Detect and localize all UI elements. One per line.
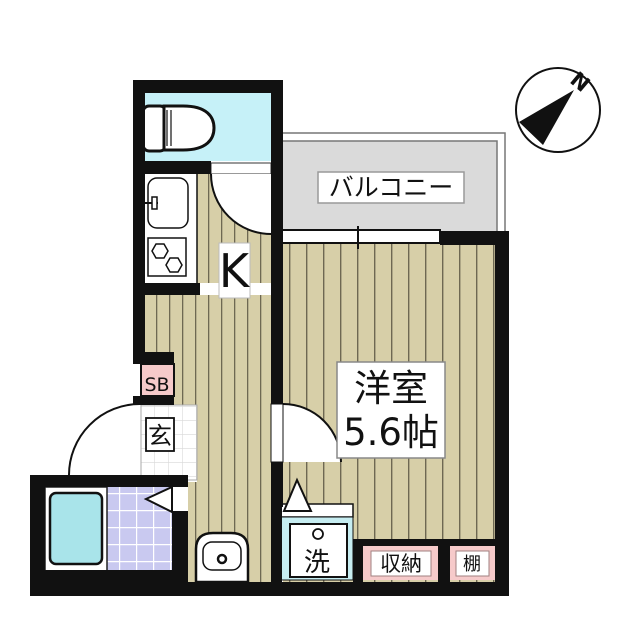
hall-floor-upper [145,295,271,352]
closet-label: 収納 [380,552,422,576]
compass: N [516,67,600,152]
wall-bath-top [30,475,188,487]
bathroom [45,487,172,571]
wall-toilet-bottom [133,161,211,174]
wall-closet-left [353,539,363,582]
floor-plan-svg: バルコニー [0,0,640,640]
shelf-label: 棚 [463,554,481,575]
stove-burner-1 [152,244,168,258]
entrance-door-arc [69,404,140,475]
wall-hall-room-lower [271,462,283,507]
toilet-door-threshold [211,163,271,174]
wall-hall-room-upper [271,245,283,404]
bathtub [50,493,102,564]
wall-closet-divider [438,539,450,582]
basin-drain [218,555,226,563]
wall-bath-bottom [30,570,188,584]
wall-right [495,231,509,596]
balcony: バルコニー [282,133,505,233]
wall-closet-top [353,539,497,546]
hall-floor-lower [197,405,271,482]
closet-shelf: 収納 棚 [363,546,495,580]
main-room-name: 洋室 [354,367,428,410]
kitchen-faucet-handle [152,197,157,209]
wall-toilet-top [133,80,283,93]
balcony-label: バルコニー [329,173,454,202]
wall-sb-top [133,352,174,364]
toilet-fixture [143,106,214,151]
wall-left [133,80,145,364]
wall-bath-right [172,511,188,582]
main-room-size: 5.6帖 [343,411,439,454]
wall-sb-bottom [133,396,174,405]
hall-floor-mid [174,352,271,405]
wall-kitchen-right [271,80,283,245]
laundry-label: 洗 [304,548,330,578]
main-door-leaf [271,404,283,462]
window-frame [282,230,440,243]
entrance-label: 玄 [148,422,172,450]
floor-plan-page: バルコニー [0,0,640,640]
wash-basin [196,533,248,582]
wall-bottom [30,582,509,596]
stove-burner-2 [166,258,182,272]
kitchen-label: K [219,244,251,298]
wall-counter-stub [133,283,200,295]
washer-dial-icon [313,529,323,539]
shoe-box-label: SB [144,374,169,396]
stove [148,238,186,276]
